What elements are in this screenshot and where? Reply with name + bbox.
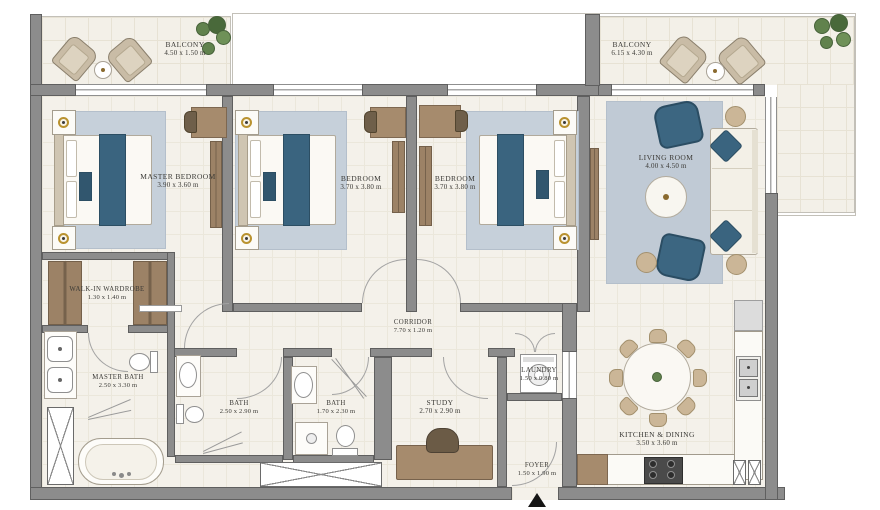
door-leaf [139,305,182,312]
washer-panel [523,357,554,362]
wall-segment [128,325,168,333]
side-table [726,254,747,275]
bed-headboard [566,134,576,226]
desk-chair [455,110,468,132]
dining-chair [693,369,707,387]
wall-segment [42,252,168,260]
plant-icon [830,14,848,32]
sink-drain-icon [747,386,750,389]
desk-chair [184,111,197,133]
window [76,84,206,96]
master-bedroom-label: MASTER BEDROOM 3.90 x 3.60 m [140,172,215,189]
desk-chair [364,111,377,133]
chair-seat [665,43,700,78]
toilet-tank [150,351,158,373]
dining-chair [649,413,667,427]
living-room-label: LIVING ROOM 4.00 x 4.50 m [639,153,694,170]
chair-seat [58,43,90,76]
bed-pillow [554,140,565,177]
table-decor-icon [663,194,669,200]
laundry-label: LAUNDRY 1.50 x 0.80 m [520,366,559,383]
bed-cushion [79,172,92,201]
wall-segment [558,487,785,500]
bedroom-3-label: BEDROOM 3.70 x 3.80 m [434,174,475,191]
floor-plan: BALCONY 4.50 x 1.50 m BALCONY 6.15 x 4.3… [0,0,880,510]
study-chair [426,428,459,453]
wall-segment [406,96,417,312]
window [448,84,536,96]
wall-segment [362,84,448,96]
window [562,352,577,398]
sofa-cushion-line [712,210,752,211]
armchair [652,99,705,150]
toilet [336,425,355,447]
entrance-arrow-icon [528,493,546,507]
console-unit [590,148,599,240]
wall-segment [585,14,600,86]
fridge [734,300,763,331]
balcony-right-label: BALCONY 6.15 x 4.30 m [611,40,652,57]
dining-chair [609,369,623,387]
shaft [47,407,74,485]
wall-segment [206,84,274,96]
faucet-icon [112,472,116,476]
bed-pillow [250,140,261,177]
bed-throw [497,134,524,226]
wall-segment [370,348,432,357]
wall-segment [507,393,562,401]
bed-pillow [66,181,77,218]
bed-pillow [554,181,565,218]
bed-throw [99,134,126,226]
wall-segment [374,357,392,460]
wardrobe [419,146,432,226]
window [612,84,753,96]
wall-segment [497,357,507,487]
bed-throw [283,134,310,226]
wall-segment [283,348,332,357]
wall-segment [598,84,612,96]
wall-segment [233,303,362,312]
lamp-icon [559,233,570,244]
toilet [129,353,150,371]
plant-icon [836,32,851,47]
chair-seat [114,44,146,77]
burner-icon [649,471,657,479]
master-bath-label: MASTER BATH 2.50 x 3.30 m [92,373,143,390]
wardrobe [392,141,405,213]
table-decor-icon [713,69,717,73]
lamp-icon [241,233,252,244]
toilet-tank [332,448,358,456]
balcony-left-label: BALCONY 4.50 x 1.50 m [164,40,205,57]
burner-icon [667,471,675,479]
kitchen-counter-right [734,331,763,480]
bed-pillow [66,140,77,177]
burner-icon [649,460,657,468]
sofa-cushion-line [712,168,752,169]
wall-segment [30,487,512,500]
side-table [725,106,746,127]
lamp-icon [58,117,69,128]
kitchen-dining-label: KITCHEN & DINING 3.50 x 3.60 m [619,430,695,447]
shaft [748,460,761,485]
wall-segment [753,84,765,96]
shower-drain-icon [306,433,317,444]
wall-segment [460,303,577,312]
window [274,84,362,96]
window [765,97,777,193]
kitchen-cabinet [577,454,608,485]
lamp-icon [58,233,69,244]
balcony-right-floor-side [777,84,855,213]
sink [179,362,197,388]
storage-shaft [260,462,382,487]
bath-2-label: BATH 1.70 x 2.30 m [317,399,356,416]
study-label: STUDY 2.70 x 2.90 m [419,398,460,415]
wall-segment [488,348,515,357]
sofa-back [752,130,758,253]
sink [294,372,313,398]
faucet-icon [127,472,131,476]
bed-cushion [536,170,549,199]
centerpiece-plant-icon [652,372,662,382]
toilet-tank [176,404,184,424]
bath-1-label: BATH 2.50 x 2.90 m [220,399,259,416]
lamp-icon [241,117,252,128]
plant-icon [814,18,830,34]
lamp-icon [559,117,570,128]
bed-headboard [238,134,248,226]
wall-segment [30,84,76,96]
burner-icon [667,460,675,468]
wall-segment [167,252,175,457]
corridor-label: CORRIDOR 7.70 x 1.20 m [394,318,433,335]
toilet [185,406,204,423]
faucet-icon [119,473,124,478]
sink-drain-icon [58,378,62,382]
walk-in-wardrobe-label: WALK-IN WARDROBE 1.30 x 1.40 m [69,285,144,302]
bed-headboard [54,134,64,226]
bed-cushion [263,172,276,201]
dining-chair [649,329,667,343]
sink-drain-icon [58,347,62,351]
plant-icon [216,30,231,45]
foyer-label: FOYER 1.50 x 1.90 m [518,461,557,478]
plant-icon [820,36,833,49]
sink-drain-icon [747,366,750,369]
table-decor-icon [101,68,105,72]
bed-pillow [250,181,261,218]
side-table [636,252,657,273]
wall-segment [765,193,778,500]
wall-segment [562,303,577,352]
bedroom-2-label: BEDROOM 3.70 x 3.80 m [340,174,381,191]
wall-segment [562,398,577,487]
shaft [733,460,746,485]
